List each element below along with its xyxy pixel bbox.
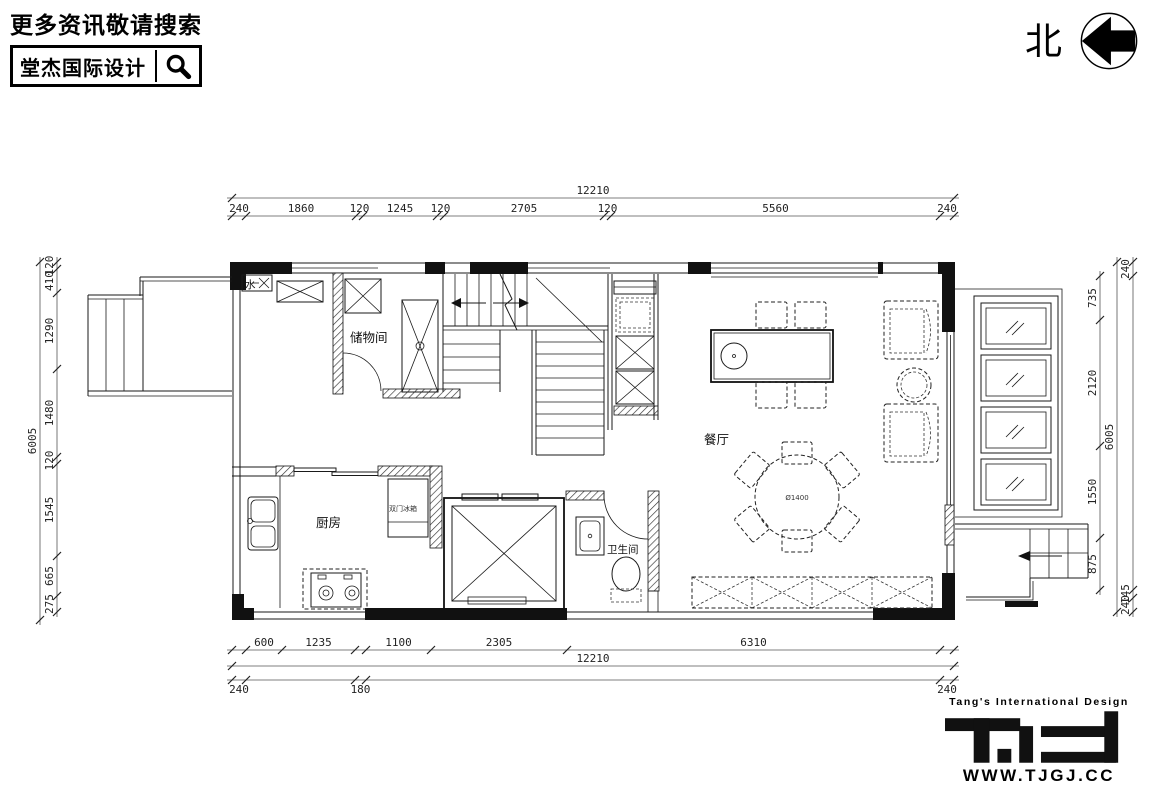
dimension-label: 1860 xyxy=(288,202,315,215)
dimension-label: 5560 xyxy=(762,202,789,215)
room-label-dining: 餐厅 xyxy=(704,432,729,447)
chair xyxy=(734,451,770,488)
north-label: 北 xyxy=(1025,23,1062,60)
sideboard xyxy=(692,577,932,608)
search-icon xyxy=(165,53,192,80)
dimension-label: 1480 xyxy=(43,400,56,427)
storage-cabinet xyxy=(277,281,323,302)
dimension-label: 6005 xyxy=(26,428,39,455)
dimension-label: 275 xyxy=(43,594,56,614)
entry-arrow xyxy=(1018,551,1030,561)
dimension-label: 735 xyxy=(1086,288,1099,308)
dimension-label: 1545 xyxy=(43,497,56,524)
dimension-label: 1235 xyxy=(305,636,332,649)
designer-logo-block: Tang's International Design WWW.TJGJ.CC xyxy=(932,696,1146,786)
dimension-label: 2705 xyxy=(511,202,538,215)
chair xyxy=(782,442,812,464)
water-meter-label: 水 xyxy=(245,279,256,291)
dimension-label: 1290 xyxy=(43,318,56,345)
dimension-label: 120 xyxy=(350,202,370,215)
dimension-label: 120 xyxy=(431,202,451,215)
glass-pane xyxy=(981,355,1051,401)
brand-box: 堂杰国际设计 xyxy=(10,45,202,87)
chair xyxy=(734,505,770,542)
room-label-bathroom: 卫生间 xyxy=(607,543,639,556)
dimension-label: 120 xyxy=(598,202,618,215)
elevator-door xyxy=(502,494,538,500)
table-size-label: Ø1400 xyxy=(785,494,808,502)
dimension-label: 410 xyxy=(43,271,56,291)
glass-pane xyxy=(981,407,1051,453)
divider xyxy=(155,50,157,82)
dimension-label: 240 xyxy=(937,683,957,696)
dimension-label: 240 xyxy=(1119,595,1132,615)
glass-pane xyxy=(981,459,1051,505)
cabinet-column xyxy=(614,274,658,420)
header: 更多资讯敬请搜索 堂杰国际设计 xyxy=(10,6,202,87)
dimension-label: 6005 xyxy=(1103,424,1116,451)
storage-wardrobe xyxy=(402,300,438,392)
island-table xyxy=(711,330,833,382)
dining-room xyxy=(692,301,938,608)
bathroom-sink xyxy=(576,517,604,555)
elevator xyxy=(444,494,564,609)
dimension-label: 600 xyxy=(254,636,274,649)
dimension-label: 875 xyxy=(1086,554,1099,574)
window-bay xyxy=(955,289,1062,517)
stair-direction-arrow xyxy=(451,298,461,308)
storage-cabinet xyxy=(345,279,381,313)
dimension-label: 665 xyxy=(43,566,56,586)
compass: 北 xyxy=(1025,10,1140,72)
dimension-label: 2305 xyxy=(486,636,513,649)
sliding-door xyxy=(332,472,378,476)
chair xyxy=(756,302,787,328)
kitchen-sink xyxy=(248,497,279,550)
tagline: Tang's International Design xyxy=(932,696,1146,708)
brand-name: 堂杰国际设计 xyxy=(20,52,146,81)
floor-plan: 储物间 厨房 卫生间 餐厅 水 双门冰箱 Ø1400 1221024018601… xyxy=(0,0,1158,800)
kitchen xyxy=(232,466,442,609)
stair-break-line xyxy=(500,274,517,330)
storage-door-arc xyxy=(343,353,381,391)
chair xyxy=(795,302,826,328)
dimension-label: 240 xyxy=(229,683,249,696)
room-label-kitchen: 厨房 xyxy=(316,515,341,530)
dimension-label: 2120 xyxy=(1086,370,1099,397)
north-arrow-icon xyxy=(1078,10,1140,72)
bathroom-door-arc xyxy=(604,495,648,539)
dimension-label: 240 xyxy=(937,202,957,215)
fridge-label: 双门冰箱 xyxy=(389,504,417,513)
room-label-storage: 储物间 xyxy=(350,330,388,345)
dimension-label: 120 xyxy=(43,451,56,471)
dimension-label: 1100 xyxy=(385,636,412,649)
porch-steps xyxy=(88,277,232,396)
dimension-label: 6310 xyxy=(740,636,767,649)
chair xyxy=(795,382,826,408)
tid-logo xyxy=(945,711,1133,765)
dimension-label: 180 xyxy=(351,683,371,696)
armchair xyxy=(884,404,938,462)
chair xyxy=(756,382,787,408)
dimension-label: 12210 xyxy=(576,652,609,665)
dimension-label: 1550 xyxy=(1086,479,1099,506)
elevator-door xyxy=(462,494,498,500)
glass-pane xyxy=(981,303,1051,349)
search-prompt: 更多资讯敬请搜索 xyxy=(10,6,202,40)
gas-stove xyxy=(303,569,367,609)
side-table xyxy=(897,368,931,402)
chair xyxy=(782,530,812,552)
website-url: WWW.TJGJ.CC xyxy=(932,766,1146,786)
toilet xyxy=(611,557,641,602)
dimension-label: 12210 xyxy=(576,184,609,197)
sliding-door xyxy=(294,468,336,472)
entry-steps xyxy=(955,524,1088,607)
staircase xyxy=(443,274,612,455)
dimension-label: 1245 xyxy=(387,202,414,215)
dimension-label: 240 xyxy=(229,202,249,215)
armchair xyxy=(884,301,938,359)
stair-direction-arrow xyxy=(519,298,529,308)
dimension-label: 240 xyxy=(1119,259,1132,279)
